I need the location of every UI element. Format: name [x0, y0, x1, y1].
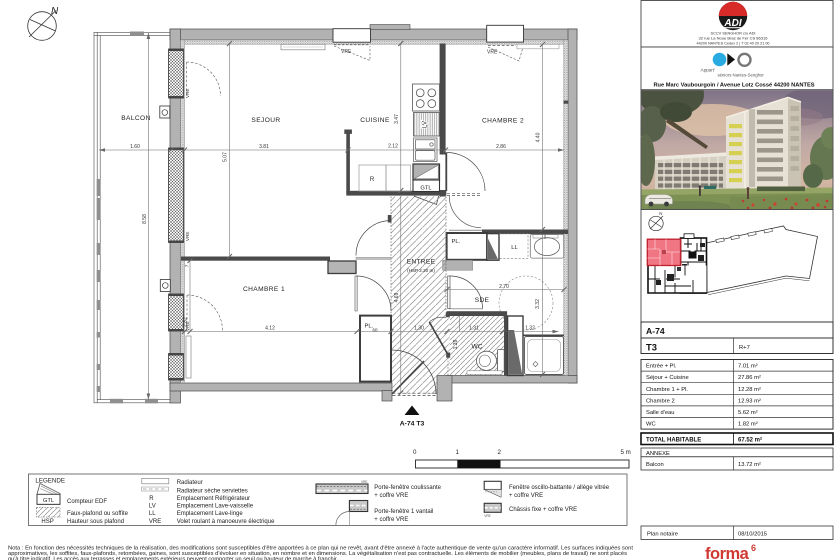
svg-text:2: 2: [498, 449, 502, 456]
svg-text:A-74 T3: A-74 T3: [400, 421, 425, 428]
svg-text:Rue Marc Vaubourgoin / Avenue: Rue Marc Vaubourgoin / Avenue Lotz Cossé…: [653, 83, 814, 89]
svg-text:HSP: HSP: [41, 519, 53, 525]
svg-text:1.39: 1.39: [453, 339, 459, 349]
svg-text:3.32: 3.32: [535, 299, 541, 309]
svg-text:LL: LL: [149, 511, 156, 517]
svg-text:Emplacement Réfrigérateur: Emplacement Réfrigérateur: [177, 496, 250, 502]
svg-text:+ coffre VRE: + coffre VRE: [509, 493, 543, 499]
svg-text:SDE: SDE: [475, 297, 490, 304]
svg-text:Plan notaire: Plan notaire: [647, 532, 678, 538]
svg-text:VRE: VRE: [185, 232, 190, 241]
svg-text:Châssis fixe + coffre VRE: Châssis fixe + coffre VRE: [509, 507, 577, 513]
svg-text:5 m: 5 m: [621, 449, 631, 456]
svg-text:T3: T3: [646, 342, 657, 353]
svg-text:0: 0: [413, 449, 417, 456]
svg-text:12.28 m²: 12.28 m²: [738, 387, 761, 393]
svg-text:4.40: 4.40: [536, 132, 542, 142]
svg-text:Radiateur: Radiateur: [177, 480, 203, 486]
svg-text:2.12: 2.12: [388, 144, 398, 150]
svg-text:8.58: 8.58: [142, 214, 148, 224]
svg-text:WC: WC: [646, 422, 656, 428]
svg-text:LV: LV: [149, 504, 156, 510]
svg-text:Porte-fenêtre coulissante: Porte-fenêtre coulissante: [374, 485, 441, 491]
svg-text:7.01 m²: 7.01 m²: [738, 364, 758, 370]
svg-text:ENTREE: ENTREE: [407, 259, 436, 266]
svg-text:forma: forma: [705, 545, 750, 560]
svg-text:Séjour + Cuisine: Séjour + Cuisine: [646, 375, 689, 381]
svg-text:32 rue La Noue Bras de Fer CS: 32 rue La Noue Bras de Fer CS 86316: [699, 36, 768, 40]
svg-text:R: R: [149, 496, 154, 502]
svg-text:Compteur EDF: Compteur EDF: [67, 499, 107, 505]
svg-text:GTL: GTL: [420, 186, 432, 192]
svg-text:Balcon: Balcon: [646, 462, 664, 468]
svg-text:Appart': Appart': [701, 68, 716, 73]
svg-text:67.52 m²: 67.52 m²: [738, 437, 762, 444]
svg-text:TOTAL HABITABLE: TOTAL HABITABLE: [646, 438, 701, 444]
svg-text:1.31: 1.31: [469, 326, 479, 332]
svg-text:SCCV SENGHOR c/o ADI: SCCV SENGHOR c/o ADI: [711, 31, 756, 35]
svg-text:Salle d'eau: Salle d'eau: [646, 410, 675, 416]
svg-text:Chambre 1 + Pl.: Chambre 1 + Pl.: [646, 387, 688, 393]
svg-text:4.12: 4.12: [265, 326, 275, 332]
svg-text:qu'à titre indicatif. Les accè: qu'à titre indicatif. Les accès aux terr…: [8, 557, 338, 560]
svg-text:+ coffre VRE: + coffre VRE: [374, 493, 408, 499]
svg-text:VRE: VRE: [484, 514, 491, 518]
svg-text:2.86: 2.86: [496, 144, 506, 150]
svg-text:3.47: 3.47: [394, 114, 400, 124]
svg-text:Fenêtre oscillo-battante / all: Fenêtre oscillo-battante / allège vitrée: [509, 485, 610, 491]
svg-text:44200 NANTES Cedex 2 | T 02 40: 44200 NANTES Cedex 2 | T 02 40 20 21 00: [697, 41, 770, 45]
svg-text:1.82 m²: 1.82 m²: [738, 422, 758, 428]
svg-text:13.72 m²: 13.72 m²: [738, 462, 761, 468]
svg-text:séniors Nantes-Senghor: séniors Nantes-Senghor: [718, 73, 765, 78]
svg-text:Emplacement Lave-vaisselle: Emplacement Lave-vaisselle: [177, 504, 254, 510]
svg-text:1.32: 1.32: [525, 326, 535, 332]
svg-text:4.69: 4.69: [394, 292, 400, 302]
svg-text:5.07: 5.07: [223, 152, 229, 162]
svg-text:7: 7: [185, 264, 190, 267]
svg-text:Entrée + Pl.: Entrée + Pl.: [646, 364, 677, 370]
svg-text:2.82: 2.82: [182, 317, 188, 327]
svg-text:LL: LL: [511, 245, 518, 251]
svg-text:LV: LV: [423, 121, 429, 128]
svg-text:3.81: 3.81: [259, 144, 269, 150]
svg-text:VRE: VRE: [185, 89, 190, 98]
svg-text:R: R: [370, 176, 375, 183]
svg-text:PL.: PL.: [452, 239, 461, 245]
svg-text:5.62 m²: 5.62 m²: [738, 410, 758, 416]
svg-text:WC: WC: [472, 344, 483, 351]
svg-text:SEJOUR: SEJOUR: [251, 117, 280, 124]
svg-text:CHAMBRE 1: CHAMBRE 1: [243, 286, 285, 293]
svg-text:1.60: 1.60: [130, 144, 140, 150]
svg-text:CHAMBRE 2: CHAMBRE 2: [482, 118, 524, 125]
svg-text:2.70: 2.70: [499, 284, 509, 290]
svg-text:R+7: R+7: [739, 345, 750, 351]
svg-text:VRE: VRE: [487, 50, 498, 56]
svg-text:08/10/2015: 08/10/2015: [738, 532, 767, 538]
svg-text:1: 1: [456, 449, 460, 456]
svg-text:12.93 m²: 12.93 m²: [738, 398, 761, 404]
svg-text:VRE: VRE: [361, 480, 368, 484]
svg-text:BALCON: BALCON: [121, 115, 151, 122]
svg-text:Faux-plafond ou soffite: Faux-plafond ou soffite: [67, 511, 129, 517]
svg-text:A-74: A-74: [646, 326, 665, 336]
svg-text:27.86 m²: 27.86 m²: [738, 375, 761, 381]
svg-text:Hauteur sous plafond: Hauteur sous plafond: [67, 519, 124, 525]
svg-text:(HSP 2.20 m): (HSP 2.20 m): [407, 268, 435, 273]
svg-text:Volet roulant à manoeuvre élec: Volet roulant à manoeuvre électrique: [177, 519, 275, 525]
svg-text:6: 6: [751, 543, 756, 553]
svg-text:VRE: VRE: [341, 49, 352, 55]
svg-text:Porte-fenêtre 1 vantail: Porte-fenêtre 1 vantail: [374, 509, 433, 515]
svg-text:Emplacement Lave-linge: Emplacement Lave-linge: [177, 511, 244, 517]
svg-text:+ coffre VRE: + coffre VRE: [374, 517, 408, 523]
svg-text:VRE: VRE: [149, 519, 161, 525]
svg-text:ANNEXE: ANNEXE: [646, 451, 670, 457]
svg-text:1.30: 1.30: [414, 326, 424, 332]
svg-text:Chambre 2: Chambre 2: [646, 398, 675, 404]
svg-text:Radiateur sèche serviettes: Radiateur sèche serviettes: [177, 489, 248, 495]
svg-text:GTL: GTL: [43, 498, 55, 504]
svg-text:N: N: [51, 6, 59, 17]
svg-text:CUISINE: CUISINE: [360, 117, 390, 124]
